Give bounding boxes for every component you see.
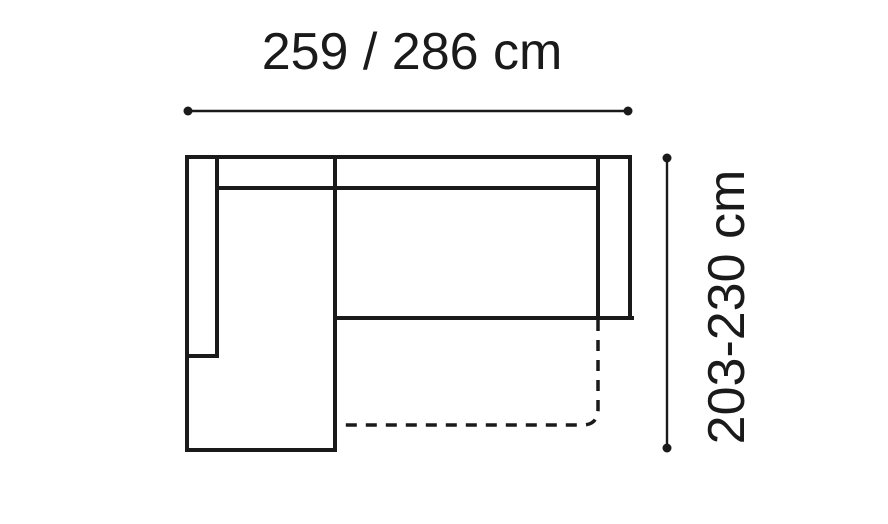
- left-armrest-line: [187, 157, 217, 356]
- sofa-outline-group: [187, 157, 632, 450]
- height-dimension-label: 203-230 cm: [701, 137, 753, 477]
- sofa-outer-outline: [187, 157, 630, 450]
- pullout-bed-dashed-outline: [334, 320, 598, 425]
- width-dimension-label: 259 / 286 cm: [192, 24, 632, 80]
- width-dimension-left-dot: [184, 107, 193, 116]
- height-dimension-bottom-dot: [663, 444, 672, 453]
- sofa-dimension-diagram: 259 / 286 cm 203-230 cm: [0, 0, 888, 524]
- width-dimension-line: [184, 107, 633, 116]
- width-dimension-right-dot: [624, 107, 633, 116]
- height-dimension-line: [663, 154, 672, 453]
- height-dimension-top-dot: [663, 154, 672, 163]
